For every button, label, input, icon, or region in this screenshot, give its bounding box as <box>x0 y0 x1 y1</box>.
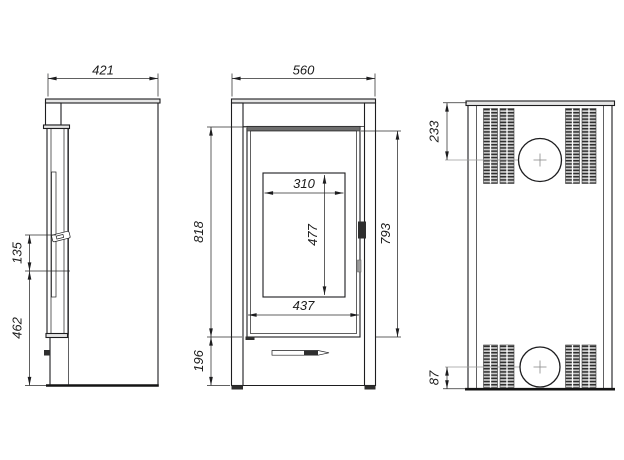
front-view: 560 818 196 793 310 477 <box>191 63 401 390</box>
dim-door-height-label: 818 <box>191 220 206 242</box>
vent-grille-top-left <box>484 109 515 184</box>
side-door-panel <box>47 129 68 335</box>
back-top-edge <box>466 101 615 106</box>
side-door-bottom-cap <box>46 334 68 338</box>
foot-right <box>365 386 376 390</box>
dim-flue-top-offset: 233 <box>427 103 468 160</box>
side-top-plate <box>46 99 161 103</box>
ashpan-handle-grip <box>304 351 318 356</box>
front-right-column <box>365 103 376 386</box>
door-lock <box>358 222 366 239</box>
dim-front-width-label: 560 <box>293 63 315 78</box>
dim-flue-bottom-offset: 87 <box>427 367 467 389</box>
dim-flue-bottom-offset-label: 87 <box>427 370 442 385</box>
door-hinge-detail <box>358 260 362 272</box>
ashpan-handle <box>272 351 329 356</box>
foot-left <box>232 386 244 390</box>
dim-door-panel-height-label: 793 <box>378 222 393 244</box>
vent-grille-bottom-left <box>484 345 515 388</box>
back-view: 233 87 <box>427 101 616 389</box>
dim-glass-height-label: 477 <box>305 223 320 245</box>
dim-front-width: 560 <box>232 63 375 97</box>
front-left-column <box>232 103 244 386</box>
dim-side-lower-section: 462 <box>10 271 47 386</box>
technical-drawing: 421 135 462 <box>0 0 624 460</box>
side-view: 421 135 462 <box>10 63 161 386</box>
vent-grille-bottom-right <box>566 345 597 388</box>
dim-side-depth-label: 421 <box>92 63 114 78</box>
dim-plinth-height-label: 196 <box>191 349 206 371</box>
door-glass <box>263 173 345 297</box>
vent-grille-top-right <box>566 109 597 184</box>
dim-door-width-label: 437 <box>293 298 315 313</box>
dim-flue-top-offset-label: 233 <box>427 120 442 143</box>
side-top-front-panel <box>46 103 62 125</box>
front-top-plate <box>232 99 376 103</box>
dim-side-depth: 421 <box>48 63 158 97</box>
dim-glass-width-label: 310 <box>293 176 315 191</box>
dim-plinth-height: 196 <box>191 337 230 386</box>
dim-side-lower-label: 462 <box>10 316 25 338</box>
door-top-frame <box>247 127 360 132</box>
drawing-canvas: 421 135 462 <box>0 0 624 460</box>
dim-side-handle-label: 135 <box>10 241 25 263</box>
door-bottom-hinge-mark <box>246 337 255 341</box>
ash-door-latch <box>44 350 50 356</box>
